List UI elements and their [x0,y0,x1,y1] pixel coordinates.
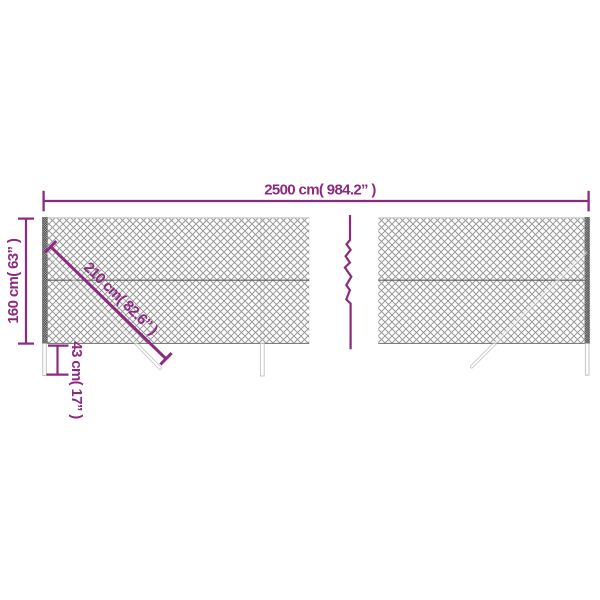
svg-text:2500 cm( 984.2” ): 2500 cm( 984.2” ) [264,182,376,199]
svg-text:43 cm( 17” ): 43 cm( 17” ) [68,341,85,419]
svg-text:160 cm( 63” ): 160 cm( 63” ) [5,238,22,324]
